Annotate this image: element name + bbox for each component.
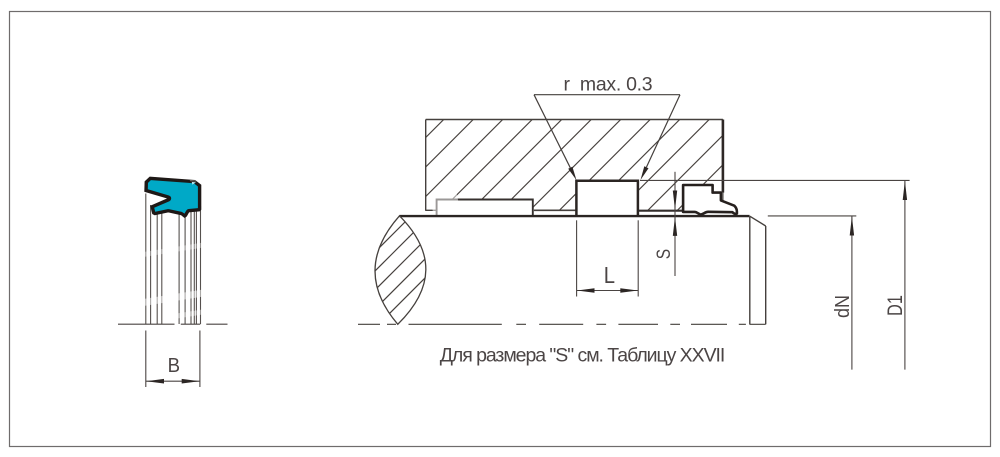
svg-text:S: S [653, 249, 675, 259]
svg-text:D1: D1 [883, 295, 906, 316]
svg-text:dN: dN [832, 295, 854, 318]
svg-text:B: B [168, 356, 180, 378]
svg-text:r max. 0.3: r max. 0.3 [564, 73, 653, 95]
svg-text:Для размера "S" см. Таблицу XX: Для размера "S" см. Таблицу XXVII [440, 345, 725, 367]
svg-text:L: L [604, 262, 615, 289]
